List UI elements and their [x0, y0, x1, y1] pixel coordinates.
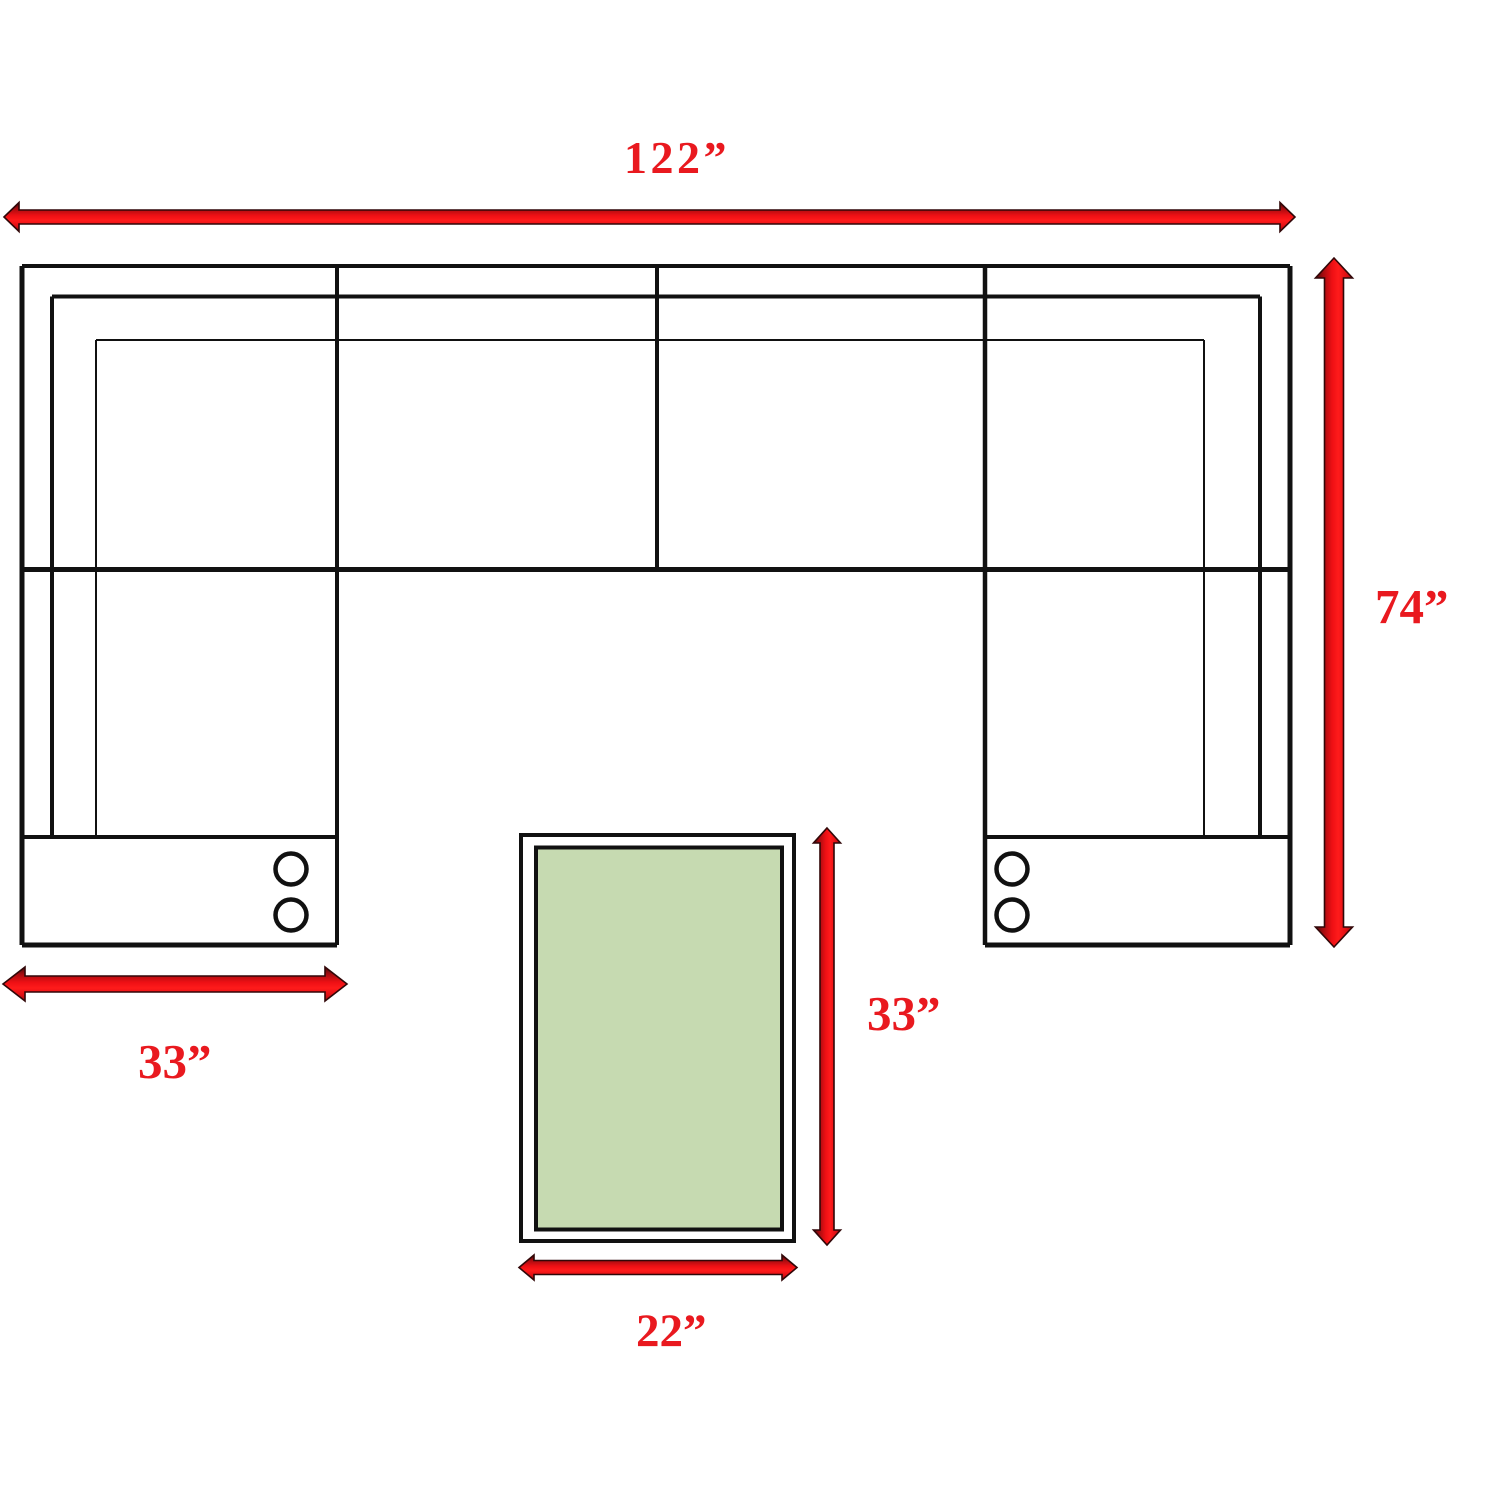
svg-text:33”: 33” — [867, 986, 941, 1041]
svg-text:22”: 22” — [636, 1305, 707, 1357]
svg-text:74”: 74” — [1375, 579, 1449, 634]
svg-text:122”: 122” — [624, 132, 730, 183]
svg-text:33”: 33” — [138, 1034, 212, 1089]
